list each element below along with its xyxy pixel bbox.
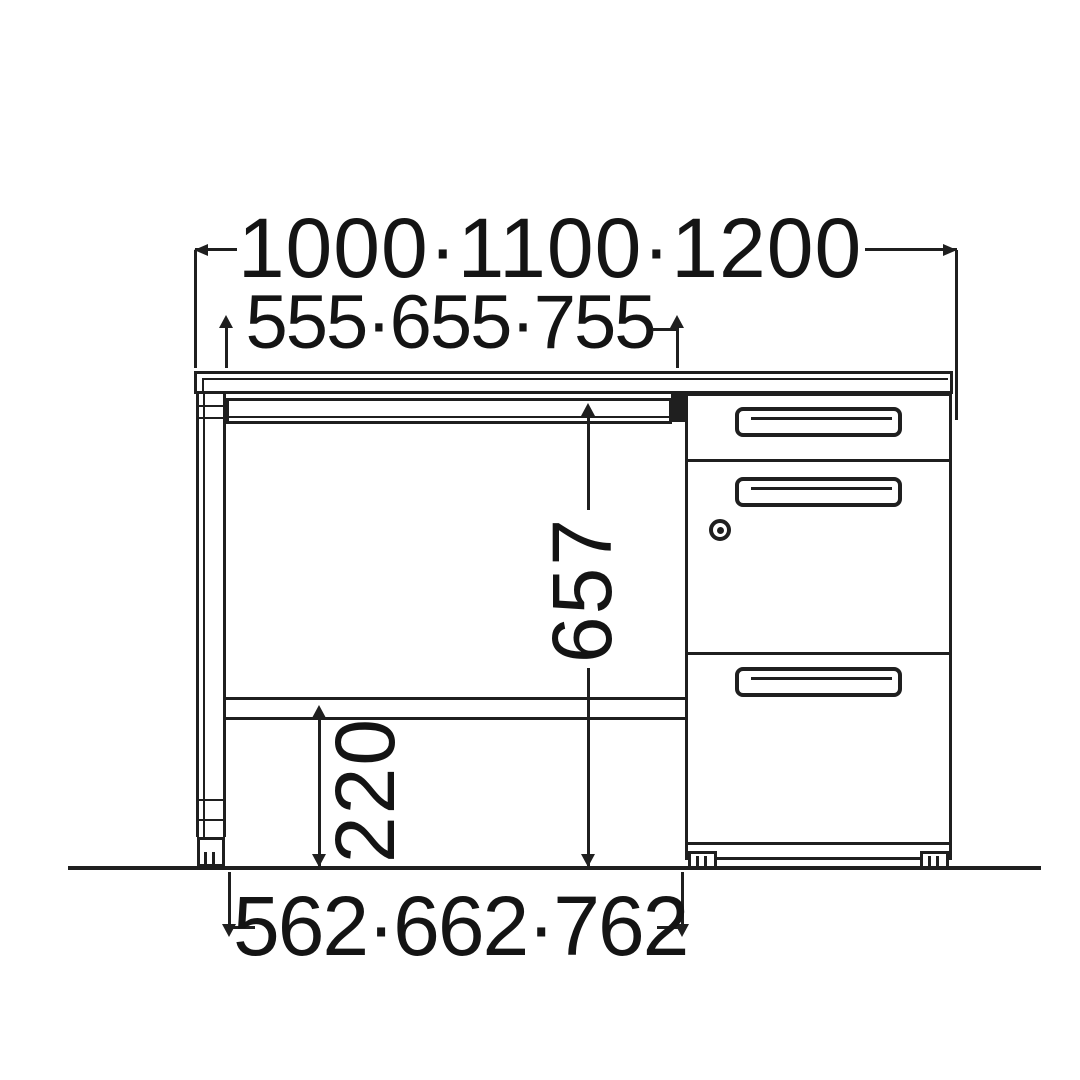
top-inner-width-stem-right: [676, 327, 679, 368]
drawer-divider-2: [685, 652, 952, 655]
drawer-pedestal: [685, 393, 952, 860]
shelf-rail-top-line: [226, 697, 686, 700]
left-leg-foot: [197, 837, 225, 867]
desktop-left-cap: [202, 378, 204, 391]
left-leg: [196, 394, 226, 837]
left-leg-glide-tick-2: [212, 852, 215, 865]
knee-height-stem-bottom: [587, 668, 590, 867]
drawer-divider-1: [685, 459, 952, 462]
middle-drawer-handle-groove: [751, 487, 892, 490]
left-leg-glide-tick-1: [204, 852, 207, 865]
middle-drawer-handle: [735, 477, 902, 507]
top-inner-width-stem-left: [225, 327, 228, 368]
top-inner-width-stub-right: [652, 328, 679, 331]
drawing-canvas: 1000·1100·1200 555·655·755: [0, 0, 1080, 1080]
apron-inner-line: [229, 416, 669, 418]
left-leg-joint-bottom-1: [196, 799, 226, 801]
left-leg-joint-bottom-2: [196, 819, 226, 821]
top-inner-width-label: 555·655·755: [230, 285, 670, 361]
apron-pedestal-gap: [671, 394, 685, 422]
overall-width-extension-right: [955, 250, 958, 420]
floor-line: [68, 866, 1041, 870]
bottom-drawer-handle: [735, 667, 902, 697]
top-drawer-handle: [735, 407, 902, 437]
under-shelf-label: 220: [323, 710, 407, 870]
knee-height-label: 657: [540, 510, 624, 670]
knee-height-stem-top: [587, 414, 590, 510]
top-drawer-handle-groove: [751, 417, 892, 420]
lock-cylinder-keyhole: [717, 527, 724, 534]
left-leg-inner-line: [203, 394, 205, 837]
bottom-drawer-handle-groove: [751, 677, 892, 680]
bottom-inner-width-label: 562·662·762: [233, 884, 673, 968]
overall-width-label: 1000·1100·1200: [225, 206, 875, 290]
shelf-rail-bottom-line: [226, 717, 686, 720]
overall-width-extension-left: [194, 250, 197, 368]
desktop-edge-line: [202, 378, 948, 380]
apron-rail: [226, 398, 672, 424]
desktop: [194, 371, 953, 394]
pedestal-plinth-line: [685, 842, 952, 845]
left-leg-joint-top-2: [196, 417, 226, 419]
left-leg-joint-top-1: [196, 405, 226, 407]
bottom-inner-width-stem-left: [228, 872, 231, 926]
